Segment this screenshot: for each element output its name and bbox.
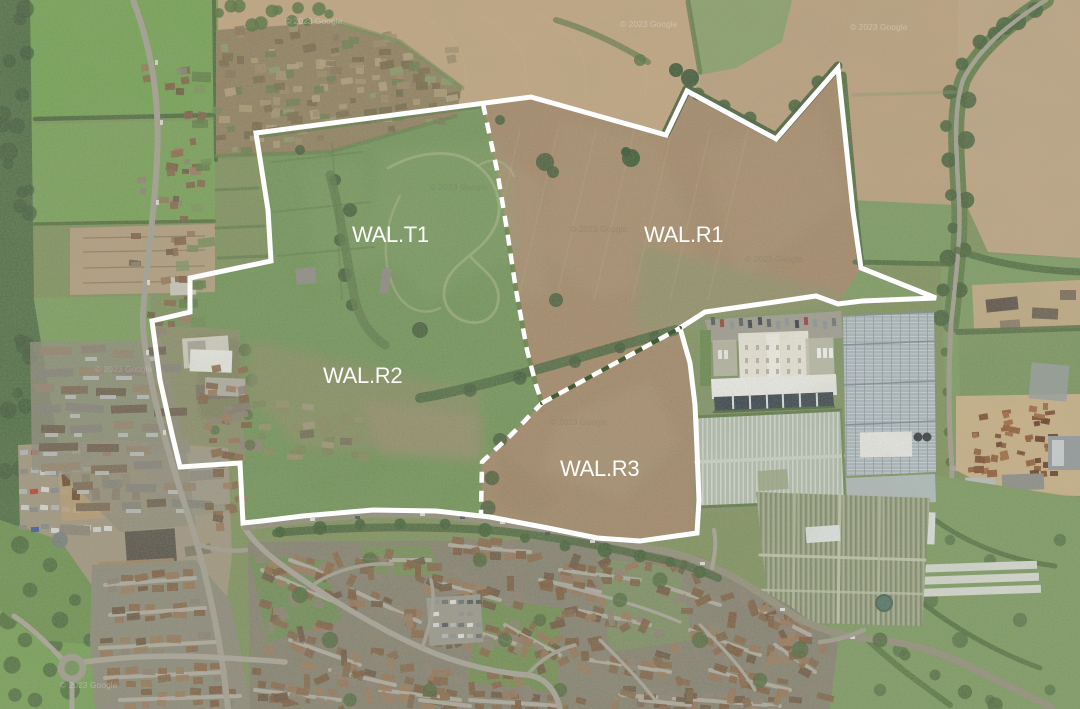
svg-text:© 2023 Google: © 2023 Google: [430, 182, 488, 192]
svg-text:© 2023 Google: © 2023 Google: [285, 16, 343, 26]
svg-text:© 2023 Google: © 2023 Google: [550, 417, 608, 427]
svg-text:© 2023 Google: © 2023 Google: [850, 22, 908, 32]
svg-text:© 2023 Google: © 2023 Google: [95, 364, 153, 374]
svg-text:WAL.R1: WAL.R1: [644, 222, 723, 247]
svg-text:WAL.T1: WAL.T1: [352, 222, 429, 247]
svg-text:© 2023 Google: © 2023 Google: [745, 254, 803, 264]
svg-text:© 2023 Google: © 2023 Google: [60, 680, 118, 690]
svg-text:WAL.R3: WAL.R3: [560, 456, 639, 481]
svg-text:WAL.R2: WAL.R2: [323, 363, 402, 388]
svg-text:© 2023 Google: © 2023 Google: [620, 19, 678, 29]
svg-text:© 2023 Google: © 2023 Google: [570, 224, 628, 234]
